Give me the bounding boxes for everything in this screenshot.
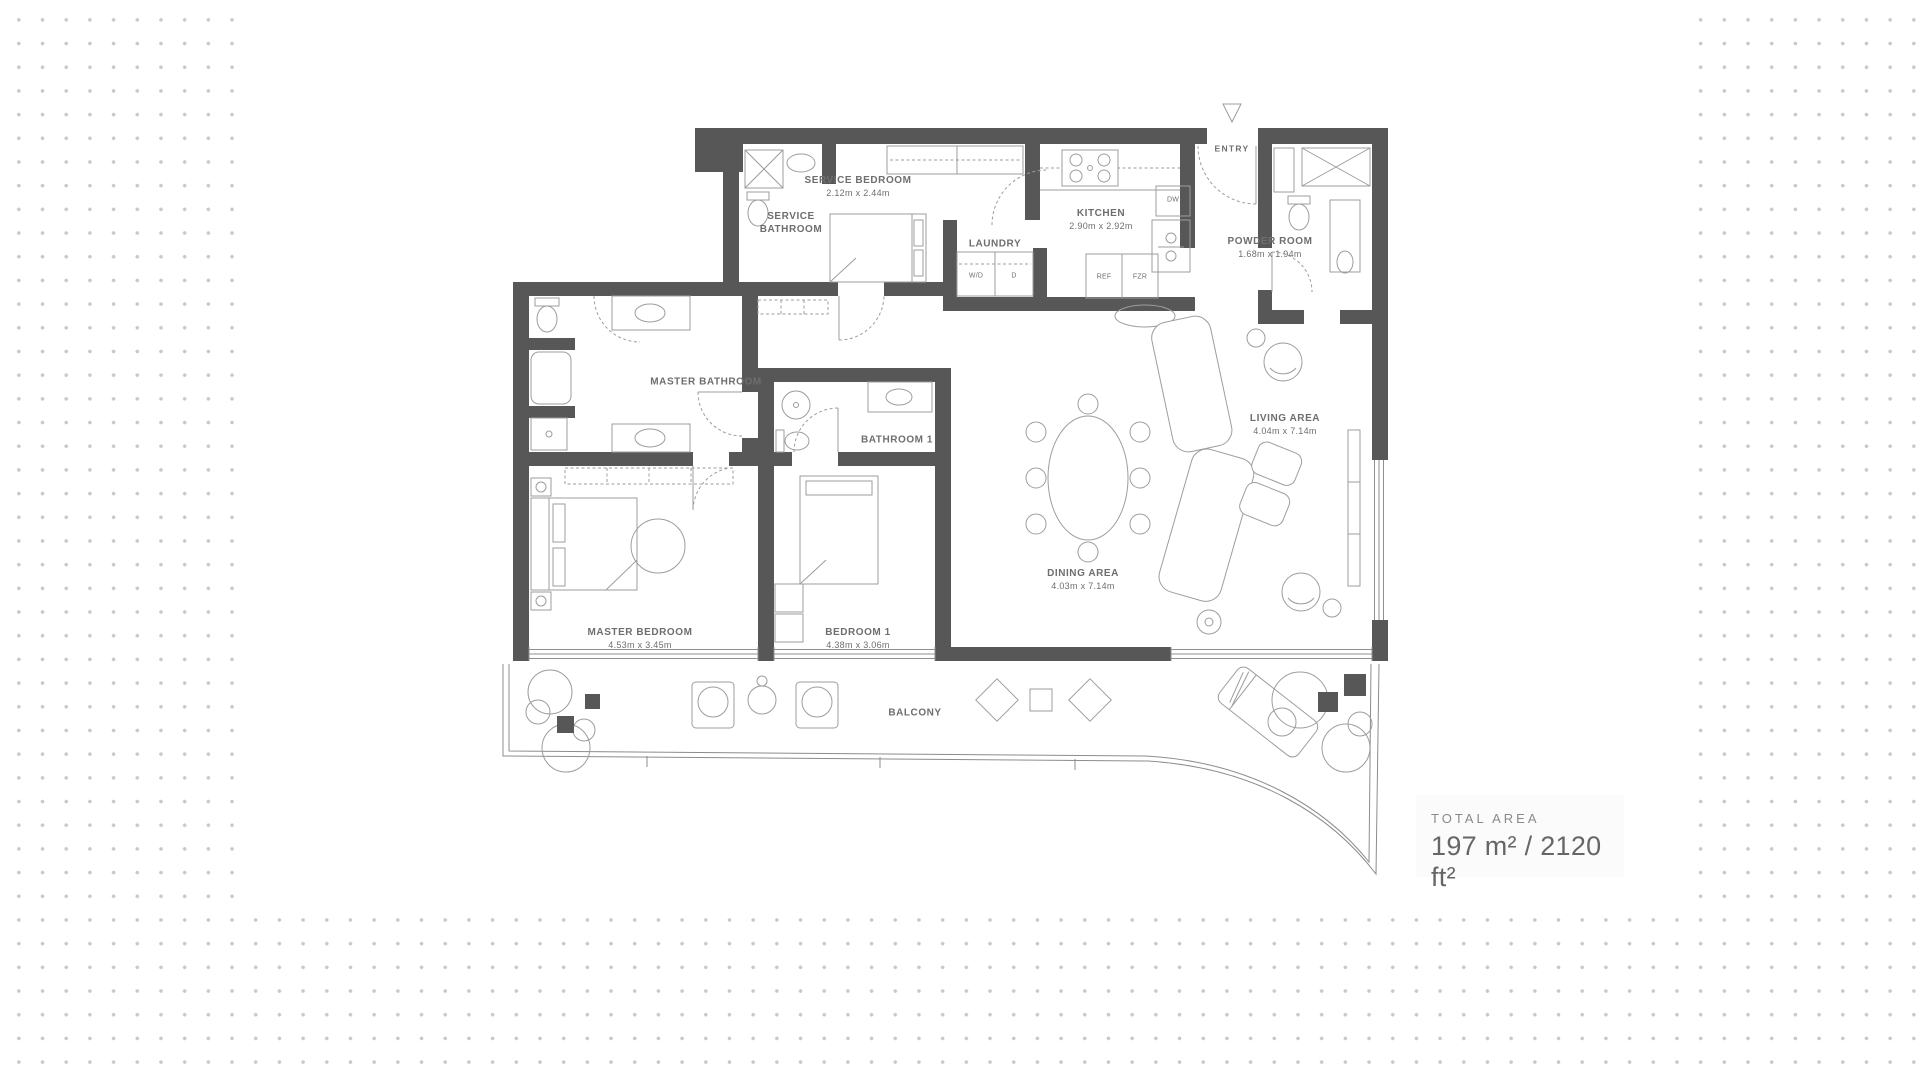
living-furniture: [1149, 313, 1360, 634]
sofa: [1149, 313, 1258, 605]
label-service-bedroom: SERVICE BEDROOM 2.12m x 2.44m: [805, 174, 912, 200]
master-bed: [531, 498, 637, 590]
room-name: SERVICE: [760, 210, 823, 223]
balcony-lounge-chairs: [692, 676, 838, 728]
balcony-layer: [503, 664, 1379, 874]
room-name: LIVING AREA: [1250, 412, 1320, 425]
corridor-closet: [758, 300, 828, 314]
label-dining-area: DINING AREA 4.03m x 7.14m: [1047, 567, 1119, 593]
total-area-value: 197 m² / 2120 ft²: [1431, 831, 1624, 893]
appliance-text: D: [1011, 272, 1016, 279]
armchair: [1264, 343, 1302, 381]
floor-plan-drawing: [0, 0, 1920, 1078]
planter-box: [557, 716, 574, 733]
room-name: POWDER ROOM: [1228, 235, 1313, 248]
room-name: MASTER BATHROOM: [650, 376, 761, 389]
floor-plan-page: { "plan": { "entry": { "label": "ENTRY" …: [0, 0, 1920, 1078]
label-dishwasher: DW: [1167, 195, 1179, 204]
label-powder-room: POWDER ROOM 1.68m x 1.94m: [1228, 235, 1313, 261]
service-bed: [830, 214, 926, 282]
label-entry: ENTRY: [1215, 143, 1250, 154]
label-master-bedroom: MASTER BEDROOM 4.53m x 3.45m: [588, 626, 693, 652]
bed-1: [800, 476, 878, 584]
label-bedroom-1: BEDROOM 1 4.38m x 3.06m: [825, 626, 891, 652]
room-dims: 4.53m x 3.45m: [588, 640, 693, 652]
room-dims: 4.38m x 3.06m: [825, 640, 891, 652]
planter-box: [1318, 692, 1338, 712]
bedroom-1-furniture: [775, 476, 878, 642]
room-name: BATHROOM 1: [861, 434, 933, 447]
planter-box: [1344, 674, 1366, 696]
entry-arrow-icon: [1223, 104, 1241, 122]
armchair: [1282, 573, 1320, 611]
total-area-card: TOTAL AREA 197 m² / 2120 ft²: [1416, 795, 1624, 877]
room-dims: 4.04m x 7.14m: [1250, 426, 1320, 438]
planter-box: [585, 694, 600, 709]
room-name: BALCONY: [888, 707, 941, 720]
stove-icon: [1062, 150, 1118, 186]
room-name: SERVICE BEDROOM: [805, 174, 912, 187]
label-refrigerator: REF: [1097, 272, 1112, 281]
appliance-text: FZR: [1133, 273, 1147, 280]
appliance-text: REF: [1097, 273, 1112, 280]
label-kitchen: KITCHEN 2.90m x 2.92m: [1069, 207, 1132, 233]
appliance-text: W/D: [969, 272, 983, 279]
room-dims: 1.68m x 1.94m: [1228, 249, 1313, 261]
label-balcony: BALCONY: [888, 707, 941, 720]
room-name: KITCHEN: [1069, 207, 1132, 220]
master-bedroom-furniture: [531, 468, 733, 610]
label-dryer: D: [1011, 271, 1016, 280]
entry-text: ENTRY: [1215, 143, 1250, 153]
room-name: BATHROOM: [760, 223, 823, 236]
room-dims: 2.90m x 2.92m: [1069, 221, 1132, 233]
master-bathroom-fixtures: [531, 296, 690, 452]
appliance-text: DW: [1167, 196, 1179, 203]
label-freezer: FZR: [1133, 272, 1147, 281]
rug: [631, 519, 685, 573]
label-living-area: LIVING AREA 4.04m x 7.14m: [1250, 412, 1320, 438]
label-laundry: LAUNDRY: [969, 238, 1021, 251]
room-name: LAUNDRY: [969, 238, 1021, 251]
label-bathroom-1: BATHROOM 1: [861, 434, 933, 447]
room-name: BEDROOM 1: [825, 626, 891, 639]
balcony-sunbed: [1215, 664, 1321, 760]
label-washer-dryer: W/D: [969, 271, 983, 280]
room-name: DINING AREA: [1047, 567, 1119, 580]
total-area-label: TOTAL AREA: [1431, 811, 1624, 826]
room-dims: 4.03m x 7.14m: [1047, 581, 1119, 593]
room-name: MASTER BEDROOM: [588, 626, 693, 639]
balcony-dining-set: [976, 679, 1111, 721]
label-master-bathroom: MASTER BATHROOM: [650, 376, 761, 389]
room-dims: 2.12m x 2.44m: [805, 188, 912, 200]
label-service-bathroom: SERVICE BATHROOM: [760, 210, 823, 236]
service-bedroom-furniture: [830, 146, 1023, 282]
dining-table: [1048, 416, 1128, 540]
dining-set: [1026, 394, 1150, 562]
walls-layer: [513, 128, 1388, 661]
tv-console: [1348, 430, 1360, 586]
